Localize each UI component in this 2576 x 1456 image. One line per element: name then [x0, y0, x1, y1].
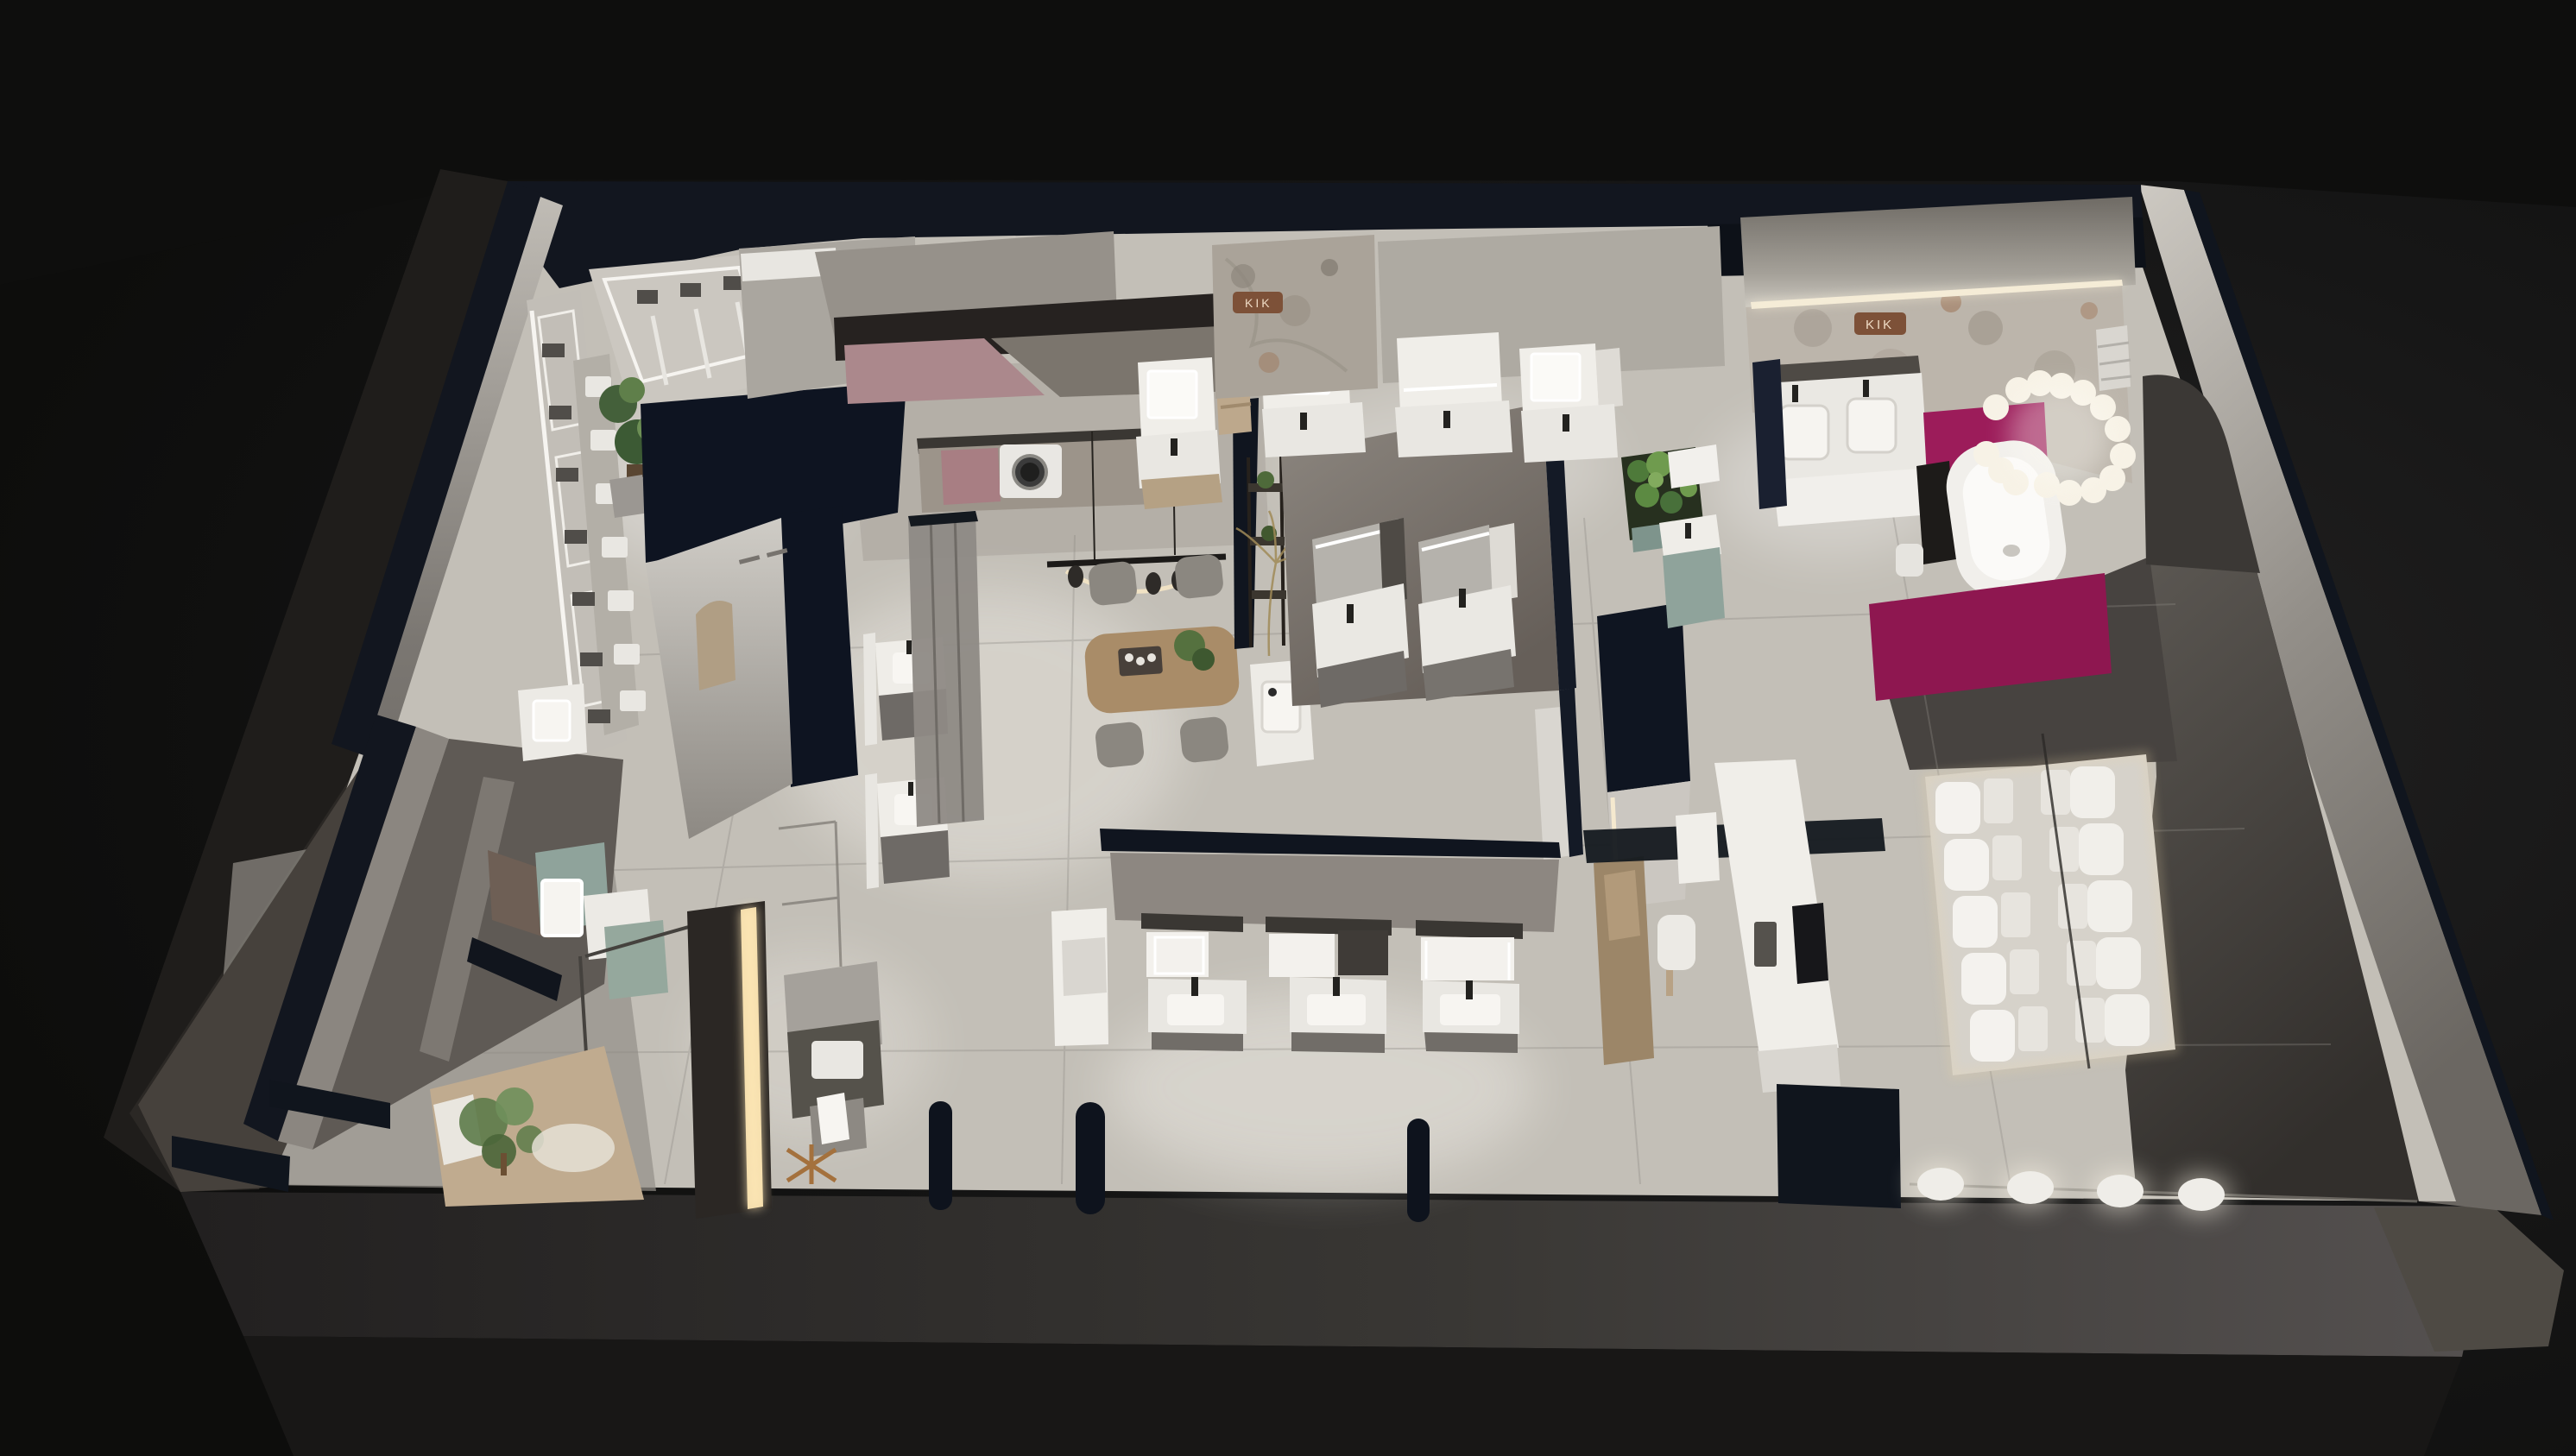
svg-text:KIK: KIK: [1866, 318, 1894, 332]
svg-text:KIK: KIK: [1245, 296, 1272, 310]
